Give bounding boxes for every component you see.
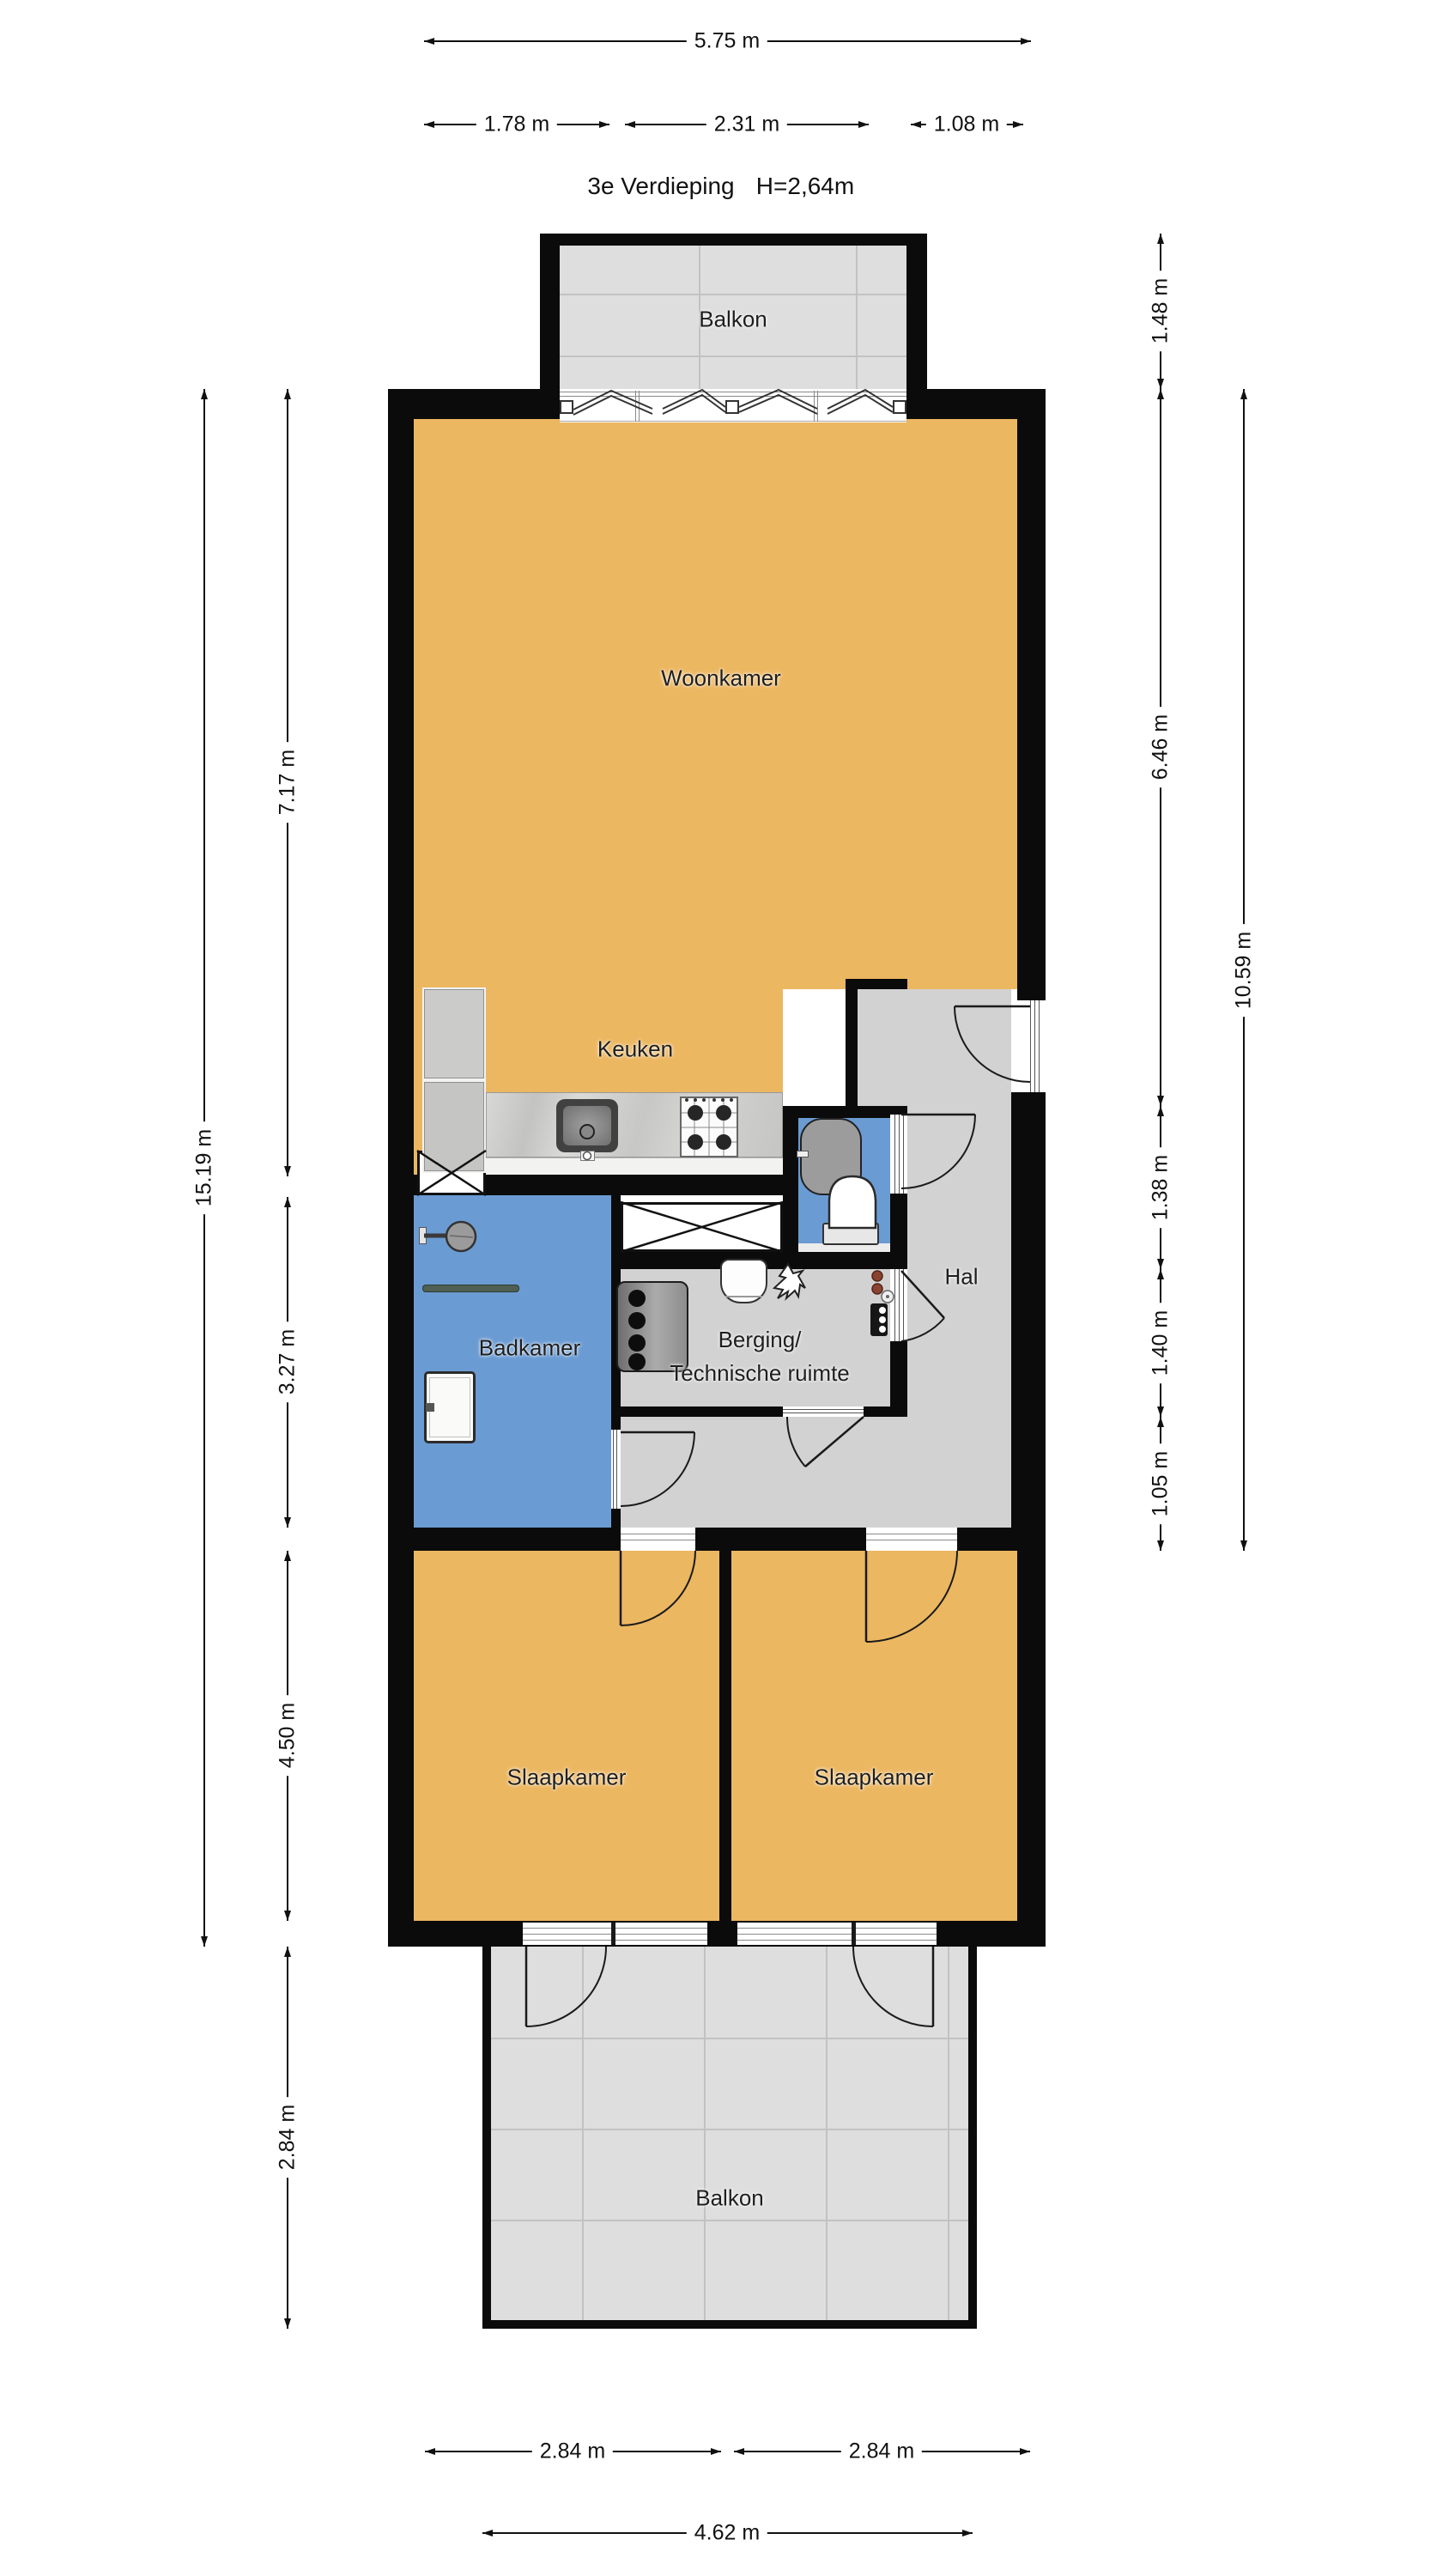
kitchen-cabinet-lower [422, 1080, 486, 1173]
berging-passage-line [783, 1409, 864, 1410]
window-frame-mullion [639, 391, 640, 422]
wall-bedrooms-top-a [414, 1528, 621, 1551]
label-woonkamer: Woonkamer [661, 665, 781, 692]
berging-passage-frame [783, 1406, 864, 1417]
toilet-door-frame-line [903, 1115, 904, 1194]
bathroom-sink-tap [426, 1403, 434, 1412]
label-berging-line2: Technische ruimte [670, 1360, 850, 1386]
label-badkamer: Badkamer [479, 1335, 581, 1362]
stove [680, 1097, 738, 1157]
window-frame-mullion [635, 391, 636, 422]
woonkamer-floor [414, 419, 1017, 989]
balcony-opening-mullion [611, 1923, 615, 1945]
dim-right-toilet: 1.38 m [1148, 1147, 1174, 1228]
bedroom-left-door-line [621, 1534, 695, 1534]
berging-door-frame-line [894, 1269, 895, 1341]
window-frame-line [560, 396, 906, 397]
wall-toilet-right-a [890, 1106, 907, 1115]
bathroom-sink-rim [429, 1377, 470, 1437]
hal-floor-column [907, 989, 1011, 1528]
toilet-door-frame-line [894, 1115, 895, 1194]
window-pivot [725, 400, 739, 414]
wall-between-bedrooms [719, 1551, 731, 1921]
front-door-frame-line [1039, 1000, 1040, 1092]
balcony-top-tile-line [856, 246, 858, 389]
wall-berging-bottom-left [611, 1406, 783, 1417]
hal-floor-nook [858, 989, 907, 1106]
floorplan-canvas: 3e Verdieping H=2,64m Balkon Woonkamer K… [0, 0, 1449, 2576]
balcony-opening-line [737, 1934, 937, 1935]
balcony-opening-mullion [852, 1923, 856, 1945]
front-door-frame-line [1030, 1000, 1031, 1092]
window-pivot [893, 400, 906, 414]
dim-right-total: 10.59 m [1231, 924, 1258, 1017]
dim-right-living: 6.46 m [1148, 707, 1174, 787]
dim-top-total: 5.75 m [687, 28, 767, 55]
label-berging: Berging/ Technische ruimte [670, 1323, 850, 1390]
wall-balcony-top-left [540, 234, 560, 389]
toilet-washbasin-tap [797, 1151, 809, 1157]
shaft-large [621, 1202, 783, 1252]
plan-title-height: H=2,64m [756, 173, 854, 200]
berging-passage-line [783, 1413, 864, 1413]
bedroom-right-door-line [866, 1540, 957, 1540]
window-frame-mullion [814, 391, 815, 422]
balcony-bottom-tile-line [491, 2038, 968, 2039]
wall-top-left [388, 389, 560, 419]
window-frame-line [560, 392, 906, 392]
slaapkamer-left-floor [414, 1551, 719, 1921]
balcony-bottom-floor [491, 1947, 968, 2320]
bedroom-left-door-line [621, 1540, 695, 1540]
kitchen-counter-edge [486, 1157, 783, 1175]
kitchen-counter [486, 1092, 783, 1157]
label-slaapkamer-right: Slaapkamer [815, 1765, 934, 1791]
window-frame-mullion [817, 391, 818, 422]
dim-top-middle: 2.31 m [706, 112, 787, 138]
wall-berging-right [890, 1341, 907, 1417]
wall-bedrooms-top-c [957, 1528, 1017, 1551]
meter-panel [870, 1303, 888, 1336]
balcony-bottom-tile-line [704, 1947, 706, 2320]
wall-balcony-top-right [906, 234, 927, 389]
berging-door-frame-line [903, 1269, 904, 1341]
label-slaapkamer-left: Slaapkamer [507, 1765, 627, 1791]
wall-toilet-left [783, 1106, 798, 1269]
bedroom-right-door-line [866, 1534, 957, 1534]
wall-right-exterior-top [1017, 389, 1046, 1000]
wall-badkamer-right-lower [611, 1509, 621, 1528]
kitchen-sink-basin [563, 1106, 611, 1145]
dim-right-hall: 1.05 m [1148, 1443, 1174, 1524]
hal-floor-corridor [621, 1417, 907, 1528]
dim-right-storage: 1.40 m [1148, 1303, 1174, 1383]
dim-bottom-bedroom-left: 2.84 m [532, 2439, 613, 2465]
balcony-bottom-tile-line [948, 1947, 949, 2320]
towel-rail [422, 1285, 519, 1292]
wall-toilet-top [783, 1106, 890, 1118]
wall-bottom [388, 1921, 1046, 1947]
dim-left-bathroom: 3.27 m [275, 1321, 301, 1402]
toilet-washbasin [800, 1118, 862, 1195]
dim-left-bedrooms: 4.50 m [275, 1695, 301, 1776]
label-keuken: Keuken [597, 1036, 673, 1063]
wall-balcony-bottom-left [482, 1947, 491, 2329]
dim-top-right: 1.08 m [926, 112, 1007, 138]
balcony-bottom-tile-line [582, 1947, 584, 2320]
wall-left-exterior [388, 389, 414, 1947]
label-berging-line1: Berging/ [718, 1327, 802, 1352]
wall-bedrooms-top-b [695, 1528, 866, 1551]
wall-nook-left [846, 979, 858, 1106]
balcony-bottom-tile-line [491, 2129, 968, 2130]
window-pivot [560, 400, 573, 414]
balcony-opening-line [737, 1940, 937, 1941]
dim-right-balcony: 1.48 m [1148, 270, 1174, 351]
wall-top-right [906, 389, 1046, 419]
window-frame-line [560, 421, 906, 422]
label-balkon-bottom: Balkon [695, 2185, 764, 2212]
plan-title-floor: 3e Verdieping [587, 173, 734, 200]
wall-balcony-bottom-right [968, 1947, 977, 2329]
label-hal: Hal [944, 1264, 978, 1291]
boiler [720, 1259, 767, 1303]
wall-balcony-bottom-edge [482, 2320, 977, 2329]
balcony-bottom-tile-line [826, 1947, 828, 2320]
berging-door-frame-line [899, 1269, 900, 1341]
label-balkon-top: Balkon [699, 307, 767, 333]
kitchen-cabinet-upper [422, 987, 486, 1080]
badkamer-door-frame-line [616, 1430, 617, 1509]
wall-right-exterior-bottom [1017, 1551, 1046, 1947]
toilet-door-frame-line [899, 1115, 900, 1194]
dim-top-left: 1.78 m [476, 112, 557, 138]
balcony-bottom-tile-line [491, 2220, 968, 2221]
dim-left-living: 7.17 m [275, 742, 301, 823]
badkamer-floor [414, 1195, 611, 1528]
wall-balcony-top-top [540, 234, 927, 246]
balcony-top-tile-line [560, 294, 906, 295]
slaapkamer-right-floor [731, 1551, 1017, 1921]
dim-bottom-bedroom-right: 2.84 m [841, 2439, 922, 2465]
badkamer-door-frame-line [613, 1430, 614, 1509]
dim-bottom-balcony: 4.62 m [687, 2520, 767, 2547]
wall-right-exterior-mid [1011, 1092, 1046, 1551]
balcony-top-tile-line [560, 355, 906, 357]
toilet-cistern [822, 1223, 879, 1245]
kitchen-faucet [580, 1151, 595, 1161]
wall-berging-bottom-right [864, 1406, 907, 1417]
dim-left-balcony: 2.84 m [275, 2097, 301, 2178]
shower-bracket [419, 1227, 427, 1244]
front-door-frame-line [1034, 1000, 1035, 1092]
dim-left-total: 15.19 m [191, 1121, 218, 1214]
balcony-opening-line [737, 1928, 937, 1929]
